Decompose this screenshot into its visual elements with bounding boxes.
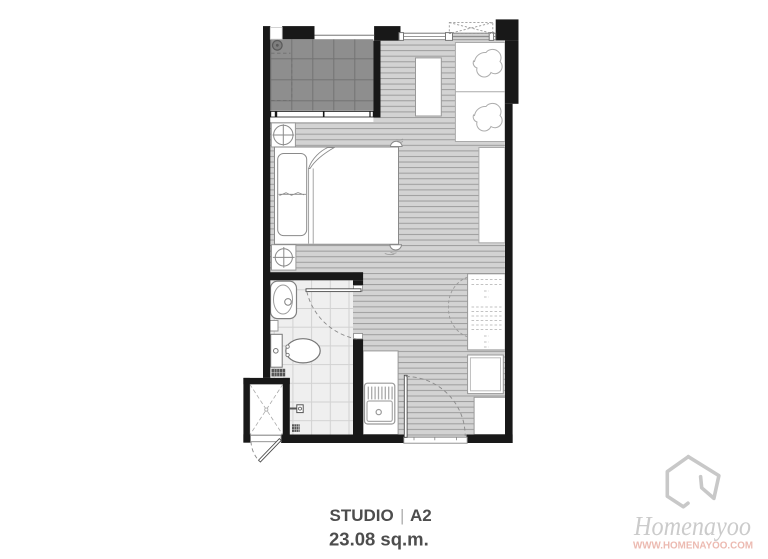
svg-text:WWW.HOMENAYOO.COM: WWW.HOMENAYOO.COM <box>633 541 753 552</box>
svg-text:Homenayoo: Homenayoo <box>633 511 751 541</box>
svg-text:A2: A2 <box>410 506 432 525</box>
svg-text:|: | <box>400 506 404 525</box>
svg-text:23.08 sq.m.: 23.08 sq.m. <box>329 529 429 550</box>
svg-text:STUDIO: STUDIO <box>330 506 394 525</box>
